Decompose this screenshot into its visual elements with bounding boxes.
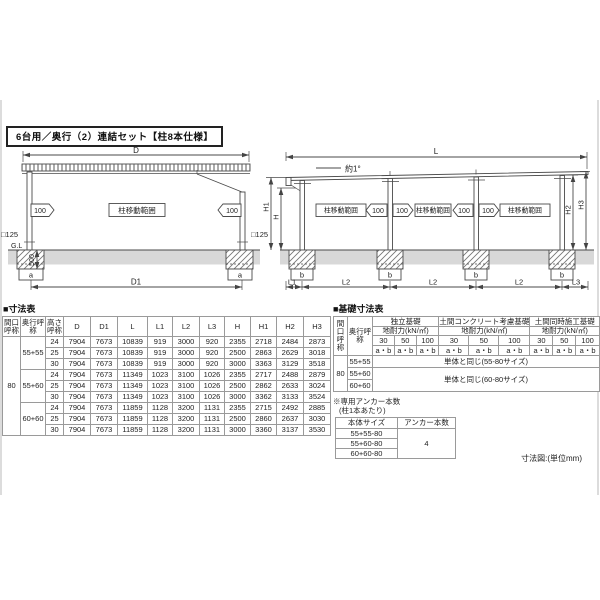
slope-label: 約1° (345, 164, 361, 174)
header-row: 30 50 100 30 50 100 30 50 100 (334, 336, 600, 346)
ground-band (280, 251, 594, 265)
table-row: 60+60 24 7904 7673 11859 1128 3200 1131 … (3, 403, 331, 414)
header-row: 間口呼称 奥行呼称 高さ呼称 D D1 L L1 L2 L3 H H1 H2 H… (3, 317, 331, 337)
dim-D-label: D (133, 146, 139, 155)
move-range-value: 100 (396, 208, 408, 215)
footing-width-b: b (388, 271, 392, 280)
dim-H1-label: H1 (262, 202, 271, 212)
table-row: 25 7904 7673 11349 1023 3100 1026 2500 2… (3, 381, 331, 392)
move-range-value: 100 (226, 208, 238, 215)
table-row: 55+55-80 4 (336, 429, 456, 439)
footing-depth-label: 500 (29, 254, 36, 266)
post-size-label: □125 (1, 230, 18, 239)
ground-band (8, 251, 260, 265)
ground-level-label: G.L (11, 243, 22, 250)
front-view-drawing: D 100 100 柱移動範囲 □125 □125 G.L (1, 146, 268, 290)
post-2 (388, 179, 393, 251)
table-row: 30 7904 7673 10839 919 3000 920 3000 336… (3, 359, 331, 370)
dimension-drawings: D 100 100 柱移動範囲 □125 □125 G.L (0, 143, 600, 305)
header-row: 本体サイズ アンカー本数 (336, 418, 456, 429)
dim-L2-label: L2 (429, 278, 437, 287)
table-row: 30 7904 7673 11859 1128 3200 1131 3000 3… (3, 425, 331, 436)
table-row: 80 55+55 単体と同じ(55-80サイズ) (334, 356, 600, 368)
dim-L3-label: L3 (572, 278, 580, 287)
anchor-note-line2: (柱1本あたり) (339, 406, 386, 415)
table-row: 25 7904 7673 10839 919 3000 920 2500 286… (3, 348, 331, 359)
footing-width-b: b (560, 271, 564, 280)
pillar-range-label: 柱移動範囲 (324, 206, 358, 215)
move-range-value: 100 (34, 208, 46, 215)
spec-sheet-page: { "title": "6台用／奥行（2）連結セット【柱8本仕様】", "lab… (0, 0, 600, 600)
table-row: 30 7904 7673 11349 1023 3100 1026 3000 3… (3, 392, 331, 403)
roof-side (287, 172, 588, 181)
table-row: 55+60 24 7904 7673 11349 1023 3100 1026 … (3, 370, 331, 381)
front-gutter (286, 178, 291, 186)
table-row: 25 7904 7673 11859 1128 3200 1131 2500 2… (3, 414, 331, 425)
foundation-table-heading: ■基礎寸法表 (333, 302, 383, 315)
header-row: a・b a・b a・b a・b a・b a・b a・b a・b a・b (334, 346, 600, 356)
anchor-note-line1: ※専用アンカー本数 (333, 397, 400, 406)
post-3 (474, 177, 479, 250)
foundation-table: 間口呼称 奥行呼称 独立基礎 土間コンクリート考慮基礎 土間同時施工基礎 地耐力… (333, 316, 600, 392)
dim-table-heading: ■寸法表 (3, 302, 35, 315)
table-row: 80 55+55 24 7904 7673 10839 919 3000 920… (3, 337, 331, 348)
pillar-range-label: 柱移動範囲 (118, 205, 156, 215)
dim-L1-label: L1 (288, 278, 296, 287)
dim-L-label: L (434, 147, 439, 156)
move-range-value: 100 (482, 208, 494, 215)
footing-width-b: b (300, 271, 304, 280)
table-row: 55+60 単体と同じ(60-80サイズ) (334, 368, 600, 380)
post-size-label: □125 (251, 230, 268, 239)
side-view-drawing: L 約1° 柱移動範囲 柱移動範囲 柱移動範囲 100 100 100 10 (262, 147, 595, 290)
dim-H2-label: H2 (564, 205, 573, 215)
dim-L2-label: L2 (342, 278, 350, 287)
right-post (240, 192, 245, 250)
dimension-table: 間口呼称 奥行呼称 高さ呼称 D D1 L L1 L2 L3 H H1 H2 H… (2, 316, 331, 436)
move-range-value: 100 (372, 208, 384, 215)
pillar-range-label: 柱移動範囲 (508, 206, 542, 215)
post-1 (300, 181, 305, 251)
pillar-range-label: 柱移動範囲 (416, 206, 450, 215)
right-footing (226, 250, 253, 269)
dim-H-label: H (272, 214, 281, 219)
header-row: 間口呼称 奥行呼称 独立基礎 土間コンクリート考慮基礎 土間同時施工基礎 (334, 317, 600, 327)
dim-D1-label: D1 (131, 278, 142, 287)
move-range-value: 100 (458, 208, 470, 215)
roof-brace (197, 174, 242, 192)
dim-H3-label: H3 (577, 200, 586, 210)
footing-width-b: b (474, 271, 478, 280)
dim-L2-label: L2 (515, 278, 523, 287)
unit-note: 寸法図:(単位mm) (420, 453, 582, 464)
header-row: 地耐力(kN/㎡) 地耐力(kN/㎡) 地耐力(kN/㎡) (334, 327, 600, 336)
